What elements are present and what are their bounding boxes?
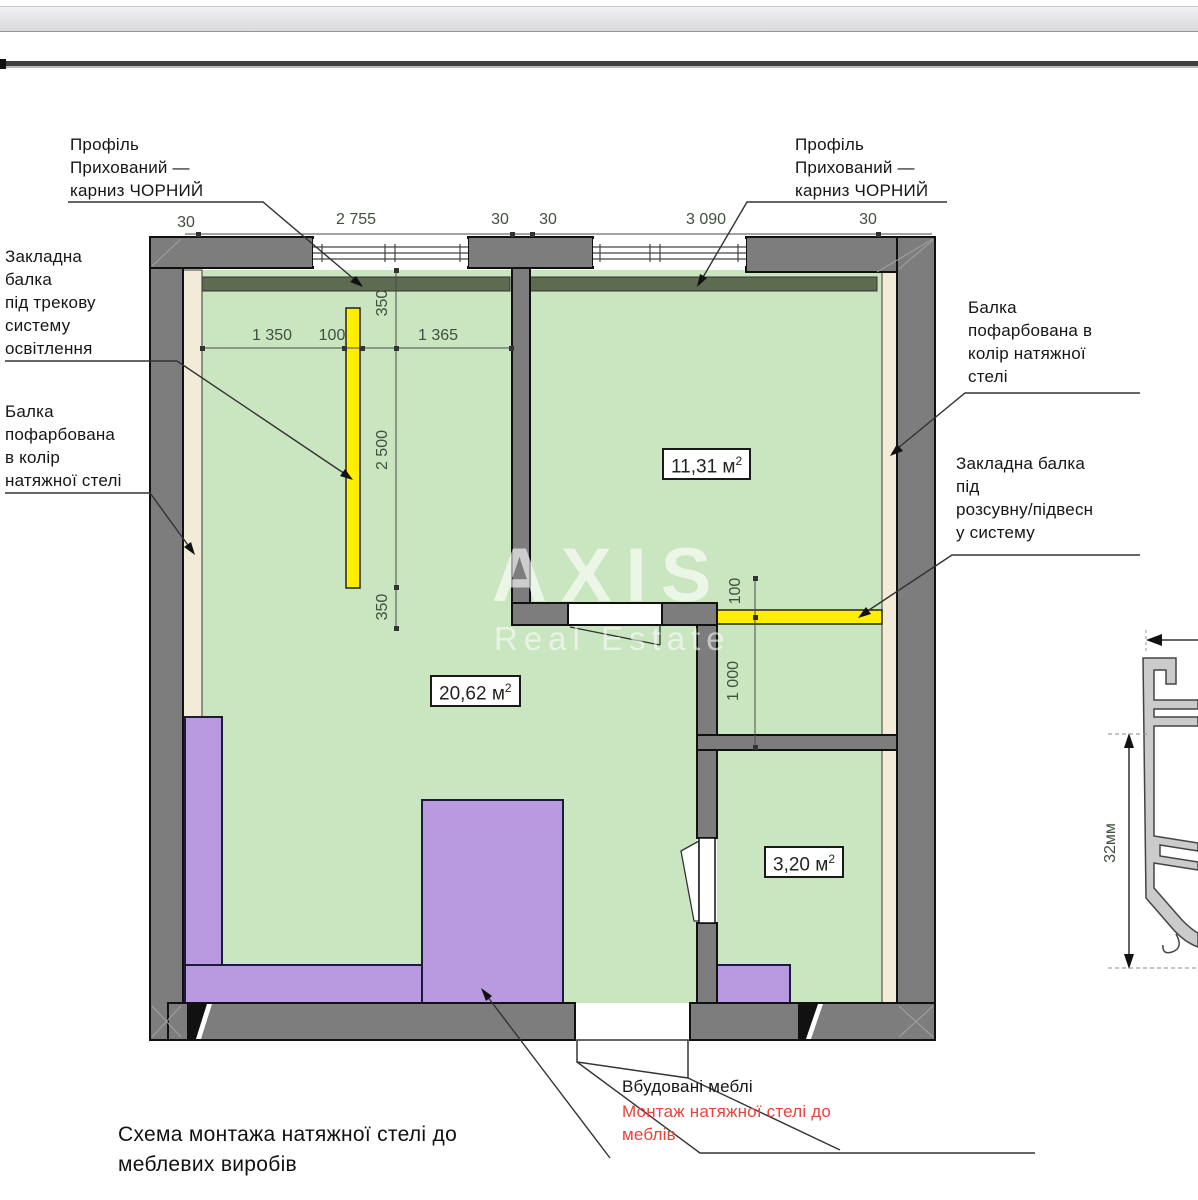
furniture-wardrobe: [422, 800, 563, 1003]
dim-top-30-c: 30: [534, 211, 562, 229]
dim-top-3090: 3 090: [672, 211, 740, 229]
label-track-beam: Закладна балка під трекову систему освіт…: [5, 245, 96, 360]
wall-top-pier: [468, 237, 593, 268]
beige-strip-bathroom: [882, 750, 897, 1003]
wall-bottom-left: [168, 1003, 575, 1040]
label-line: під трекову: [5, 291, 96, 314]
label-profile-left: Профіль Прихований — карниз ЧОРНИЙ: [70, 133, 203, 202]
wall-right: [897, 237, 935, 1040]
label-painted-beam-right: Балка пофарбована в колір натяжної стелі: [968, 296, 1092, 388]
label-line: карниз ЧОРНИЙ: [795, 179, 928, 202]
dim-350-top: 350: [374, 268, 392, 338]
area-sup: 2: [828, 852, 835, 866]
label-line: Прихований —: [795, 156, 928, 179]
area-sup: 2: [505, 681, 512, 695]
label-painted-beam-left: Балка пофарбована в колір натяжної стелі: [5, 400, 122, 492]
label-line: балка: [5, 268, 96, 291]
furniture-bottom-strip: [185, 965, 422, 1003]
area-value: 20,62 м: [439, 683, 505, 704]
label-line: Профіль: [795, 133, 928, 156]
area-badge-bedroom: 11,31 м2: [662, 448, 751, 480]
label-line: Закладна: [5, 245, 96, 268]
dim-top-30-a: 30: [172, 214, 200, 232]
dim-top-30-d: 30: [854, 211, 882, 229]
track-light-beam: [346, 308, 360, 588]
wall-bathroom-top: [697, 735, 897, 750]
label-line: Монтаж натяжної стелі до: [622, 1100, 831, 1123]
label-line: освітлення: [5, 337, 96, 360]
label-line: Балка: [968, 296, 1092, 319]
label-sliding-beam-right: Закладна балка під розсувну/підвесн у си…: [956, 452, 1093, 544]
dim-1365: 1 365: [404, 327, 472, 345]
label-line: розсувну/підвесн: [956, 498, 1093, 521]
label-line: в колір: [5, 446, 122, 469]
label-line: меблів: [622, 1123, 831, 1146]
wall-bathroom-left-lower: [697, 923, 717, 1003]
watermark-realestate: Real Estate: [494, 620, 731, 658]
door-opening-bathroom: [699, 838, 715, 923]
dim-350-bottom: 350: [374, 572, 392, 642]
label-line: Прихований —: [70, 156, 203, 179]
label-line: стелі: [968, 365, 1092, 388]
label-line: систему: [5, 314, 96, 337]
beige-strip-right: [882, 270, 897, 735]
dim-top-2755: 2 755: [322, 211, 390, 229]
furniture-left-strip: [185, 717, 222, 1003]
furniture-bathroom-cabinet: [717, 965, 790, 1003]
cornice-strips: [202, 277, 877, 291]
dim-top-30-b: 30: [486, 211, 514, 229]
wall-top-left-block: [150, 237, 313, 268]
floor-plan-page: Профіль Прихований — карниз ЧОРНИЙ Профі…: [0, 0, 1198, 1200]
label-profile-right: Профіль Прихований — карниз ЧОРНИЙ: [795, 133, 928, 202]
label-builtin-furniture: Вбудовані меблі: [622, 1075, 753, 1098]
area-badge-bathroom: 3,20 м2: [764, 846, 844, 878]
area-value: 11,31 м: [671, 456, 735, 477]
label-line: натяжної стелі: [5, 469, 122, 492]
cornice-profile-detail: [1108, 630, 1198, 969]
caption-line: Схема монтажа натяжної стелі до: [118, 1120, 457, 1150]
area-value: 3,20 м: [773, 854, 828, 875]
label-line: пофарбована в: [968, 319, 1092, 342]
door-leaf-balcony: [577, 1040, 688, 1078]
drawing-caption: Схема монтажа натяжної стелі до меблевих…: [118, 1120, 457, 1180]
dim-2500: 2 500: [374, 415, 392, 485]
label-mount-note: Монтаж натяжної стелі до меблів: [622, 1100, 831, 1146]
area-badge-living: 20,62 м2: [430, 675, 521, 707]
area-sup: 2: [735, 454, 742, 468]
wall-bathroom-left-upper: [697, 750, 717, 838]
label-line: у систему: [956, 521, 1093, 544]
profile-extrusion-shape: [1143, 658, 1198, 947]
dim-100-h: 100: [310, 327, 354, 345]
label-line: Профіль: [70, 133, 203, 156]
profile-foot-curl: [1163, 934, 1179, 953]
wall-left: [150, 237, 183, 1040]
label-line: Балка: [5, 400, 122, 423]
label-line: карниз ЧОРНИЙ: [70, 179, 203, 202]
label-line: Вбудовані меблі: [622, 1075, 753, 1098]
label-line: Закладна балка: [956, 452, 1093, 475]
dim-1350: 1 350: [238, 327, 306, 345]
watermark-axis: AXIS: [492, 532, 725, 619]
dim-100-v: 100: [727, 556, 745, 626]
caption-line: меблевих виробів: [118, 1150, 457, 1180]
label-line: під: [956, 475, 1093, 498]
dim-detail-32mm: 32мм: [1102, 808, 1120, 878]
label-line: колір натяжної: [968, 342, 1092, 365]
label-line: пофарбована: [5, 423, 122, 446]
detail-arrow-left: [1146, 634, 1162, 646]
